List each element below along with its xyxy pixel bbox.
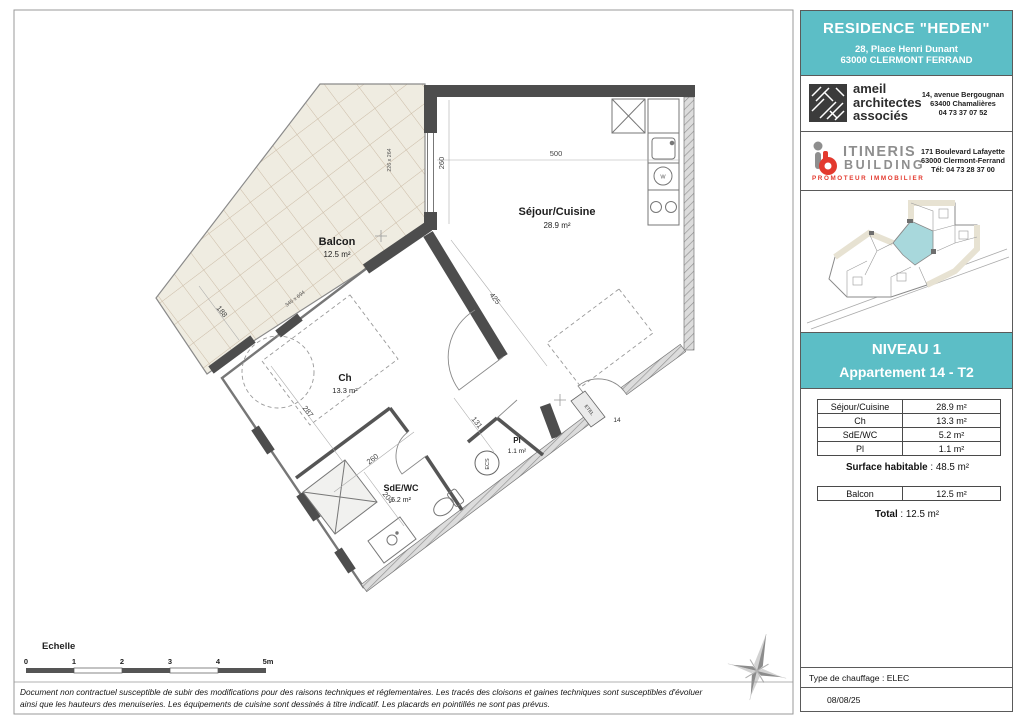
room-label-sejour: Séjour/Cuisine xyxy=(518,206,595,218)
room-area-pl: 1.1 m² xyxy=(508,448,527,455)
heating-block: Type de chauffage : ELEC xyxy=(800,667,1013,688)
wall-top xyxy=(424,85,695,97)
level-block: NIVEAU 1 Appartement 14 - T2 xyxy=(800,332,1013,389)
architect-address-1: 14, avenue Bergougnan xyxy=(917,90,1009,99)
scale-tick-1: 1 xyxy=(72,657,76,666)
room-label-ch: Ch xyxy=(338,373,351,384)
balcony-label: Balcon xyxy=(818,487,903,501)
surface-separator: : xyxy=(928,462,936,473)
room-area-balcon: 12.5 m² xyxy=(323,250,350,259)
surface-habitable-label: Surface habitable xyxy=(846,462,928,473)
total-line: Total : 12.5 m² xyxy=(817,509,998,520)
area-label: Séjour/Cuisine xyxy=(818,400,903,414)
compass-rose xyxy=(721,627,795,707)
area-label: Pl xyxy=(818,442,903,456)
architect-name-1: ameil xyxy=(853,82,922,96)
disclaimer-line2: ainsi que les hauteurs des menuiseries. … xyxy=(20,699,550,709)
level-title: NIVEAU 1 xyxy=(801,341,1012,358)
date-value: 08/08/25 xyxy=(801,688,1012,711)
developer-address-2: 63000 Clermont-Ferrand xyxy=(917,156,1009,165)
architect-phone: 04 73 37 07 52 xyxy=(917,108,1009,117)
apartment-title: Appartement 14 - T2 xyxy=(801,364,1012,380)
table-row: Séjour/Cuisine 28.9 m² xyxy=(818,400,1001,414)
room-label-balcon: Balcon xyxy=(319,236,356,248)
party-wall-right xyxy=(684,97,694,350)
dim-500: 500 xyxy=(550,149,563,158)
developer-logo-icon xyxy=(811,139,839,179)
total-value: 12.5 m² xyxy=(906,509,939,520)
architect-block: ameil architectes associés 14, avenue Be… xyxy=(800,75,1013,132)
developer-tagline: PROMOTEUR IMMOBILIER xyxy=(812,175,924,182)
residence-header: RESIDENCE "HEDEN" 28, Place Henri Dunant… xyxy=(800,10,1013,76)
area-value: 1.1 m² xyxy=(903,442,1001,456)
site-plan-block xyxy=(800,190,1013,333)
total-label: Total xyxy=(875,509,898,520)
developer-phone: Tél: 04 73 28 37 00 xyxy=(917,165,1009,174)
scale-tick-3: 3 xyxy=(168,657,172,666)
table-row: Pl 1.1 m² xyxy=(818,442,1001,456)
scale-tick-2: 2 xyxy=(120,657,124,666)
disclaimer-line1: Document non contractuel susceptible de … xyxy=(20,687,704,697)
area-label: SdE/WC xyxy=(818,428,903,442)
table-row: Ch 13.3 m² xyxy=(818,414,1001,428)
wall-stub-left-top xyxy=(424,85,437,133)
architect-logo-icon xyxy=(809,84,847,122)
scale-tick-4: 4 xyxy=(216,657,221,666)
dim-260: 260 xyxy=(437,157,446,170)
scale-tick-5: 5m xyxy=(263,657,274,666)
areas-table: Séjour/Cuisine 28.9 m² Ch 13.3 m² SdE/WC… xyxy=(817,399,1001,456)
residence-address-2: 63000 CLERMONT FERRAND xyxy=(801,55,1012,66)
total-separator: : xyxy=(898,509,906,520)
apartment-number: 14 xyxy=(613,417,621,424)
ecs-label: ECS xyxy=(485,458,491,470)
scale-title: Echelle xyxy=(42,641,75,652)
scale-tick-0: 0 xyxy=(24,657,28,666)
developer-block: ITINERIS BUILDING PROMOTEUR IMMOBILIER 1… xyxy=(800,131,1013,191)
site-plan-thumbnail xyxy=(801,191,1012,332)
date-block: 08/08/25 xyxy=(800,687,1013,712)
architect-name-2: architectes xyxy=(853,96,922,110)
area-value: 5.2 m² xyxy=(903,428,1001,442)
surface-habitable-line: Surface habitable : 48.5 m² xyxy=(817,462,998,473)
floor-plan-sheet: Balcon 12.5 m² Séjour/Cuisine 28.9 m² Ch… xyxy=(0,0,1024,725)
balcony-table: Balcon 12.5 m² xyxy=(817,486,1001,501)
areas-block: Séjour/Cuisine 28.9 m² Ch 13.3 m² SdE/WC… xyxy=(800,388,1013,668)
residence-title: RESIDENCE "HEDEN" xyxy=(801,20,1012,37)
balcony-value: 12.5 m² xyxy=(903,487,1001,501)
residence-address-1: 28, Place Henri Dunant xyxy=(801,44,1012,55)
area-value: 28.9 m² xyxy=(903,400,1001,414)
floor-plan-drawing: Balcon 12.5 m² Séjour/Cuisine 28.9 m² Ch… xyxy=(0,0,795,725)
window-dim-1: 226 x 264 xyxy=(387,148,393,171)
area-label: Ch xyxy=(818,414,903,428)
room-area-ch: 13.3 m² xyxy=(332,386,358,395)
area-value: 13.3 m² xyxy=(903,414,1001,428)
table-row: Balcon 12.5 m² xyxy=(818,487,1001,501)
scale-bar: Echelle 0 1 2 3 4 5m xyxy=(24,641,274,673)
heating-type: Type de chauffage : ELEC xyxy=(801,668,1012,687)
architect-name-3: associés xyxy=(853,109,922,123)
room-label-pl: Pl xyxy=(513,436,521,445)
room-area-sejour: 28.9 m² xyxy=(543,221,570,230)
developer-address-1: 171 Boulevard Lafayette xyxy=(917,147,1009,156)
washer-label: W xyxy=(660,175,666,181)
surface-habitable-value: 48.5 m² xyxy=(936,462,969,473)
table-row: SdE/WC 5.2 m² xyxy=(818,428,1001,442)
architect-address-2: 63400 Chamalières xyxy=(917,99,1009,108)
developer-name-2: BUILDING xyxy=(844,158,925,172)
